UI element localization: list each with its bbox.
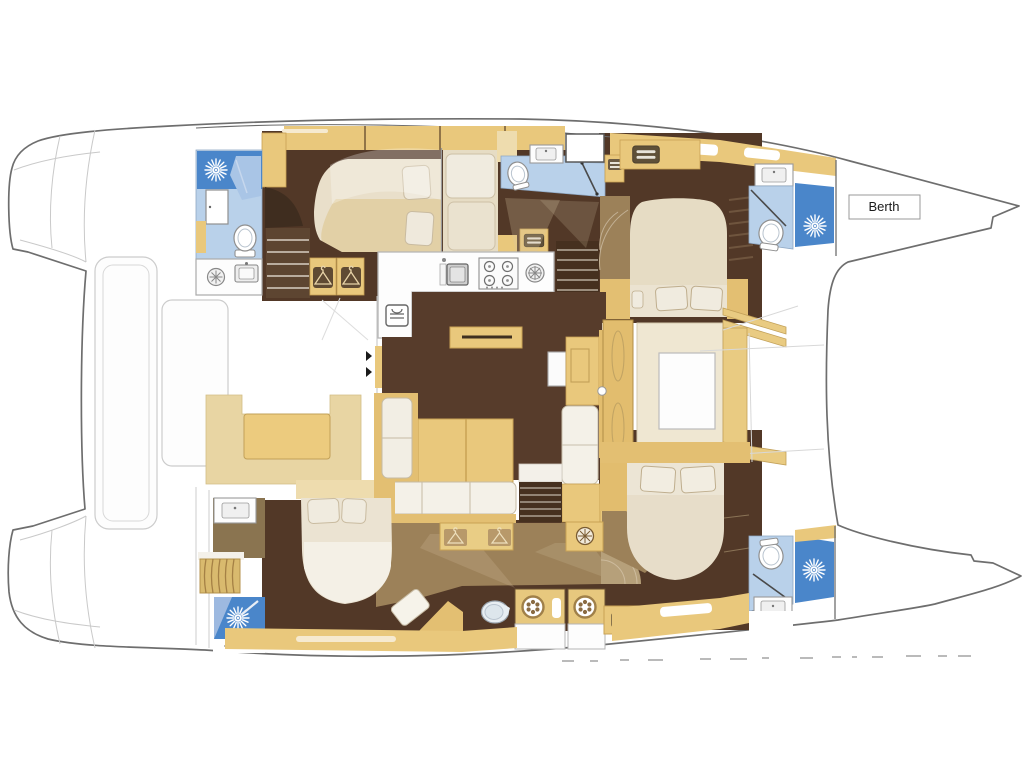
- svg-text:Berth: Berth: [868, 199, 899, 214]
